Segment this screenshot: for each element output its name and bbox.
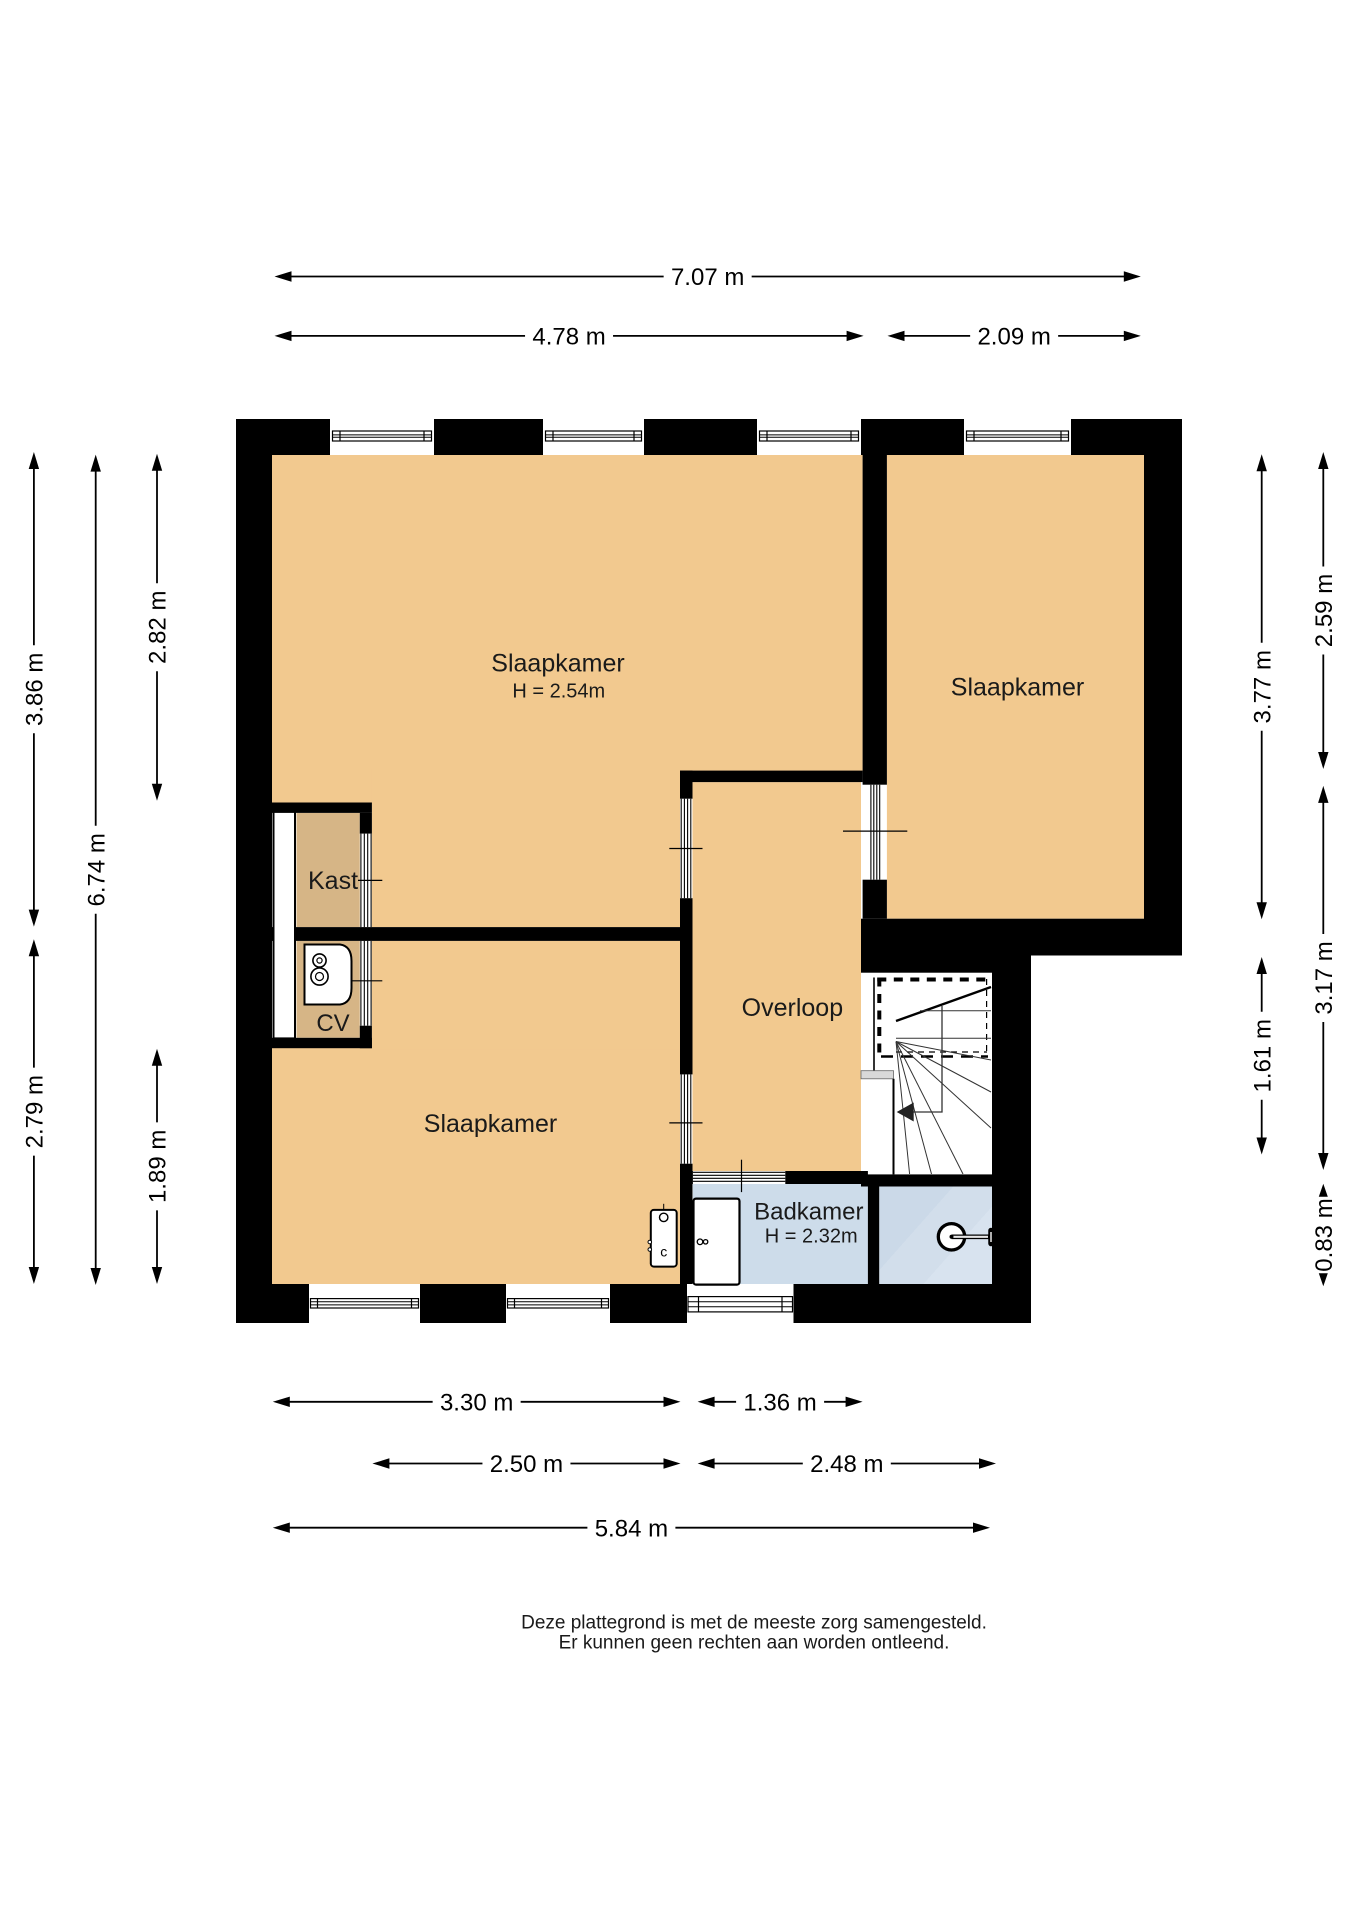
svg-text:5.84 m: 5.84 m	[595, 1515, 668, 1542]
svg-text:Overloop: Overloop	[742, 994, 843, 1022]
svg-text:0.83 m: 0.83 m	[1311, 1198, 1338, 1271]
svg-text:4.78 m: 4.78 m	[532, 324, 605, 351]
svg-text:H = 2.32m: H = 2.32m	[765, 1225, 858, 1247]
svg-text:H = 2.54m: H = 2.54m	[512, 681, 605, 703]
svg-text:Er kunnen geen rechten aan wor: Er kunnen geen rechten aan worden ontlee…	[559, 1633, 950, 1654]
svg-text:CV: CV	[316, 1010, 349, 1037]
svg-text:6.74 m: 6.74 m	[83, 833, 110, 906]
svg-text:1.61 m: 1.61 m	[1249, 1019, 1276, 1092]
svg-text:3.86 m: 3.86 m	[22, 653, 49, 726]
svg-text:Kast: Kast	[308, 867, 358, 895]
svg-text:Slaapkamer: Slaapkamer	[491, 650, 624, 678]
svg-text:Badkamer: Badkamer	[754, 1198, 863, 1225]
svg-text:2.79 m: 2.79 m	[22, 1075, 49, 1148]
svg-text:1.36 m: 1.36 m	[743, 1389, 816, 1416]
svg-text:2.09 m: 2.09 m	[977, 324, 1050, 351]
svg-text:2.82 m: 2.82 m	[145, 591, 172, 664]
svg-text:Slaapkamer: Slaapkamer	[951, 674, 1084, 702]
svg-text:3.30 m: 3.30 m	[440, 1389, 513, 1416]
svg-text:2.50 m: 2.50 m	[490, 1451, 563, 1478]
svg-text:2.59 m: 2.59 m	[1311, 574, 1338, 647]
svg-text:7.07 m: 7.07 m	[671, 264, 744, 291]
svg-text:2.48 m: 2.48 m	[810, 1451, 883, 1478]
svg-text:Deze plattegrond is met de mee: Deze plattegrond is met de meeste zorg s…	[521, 1613, 987, 1634]
svg-text:3.17 m: 3.17 m	[1311, 941, 1338, 1014]
svg-text:3.77 m: 3.77 m	[1249, 650, 1276, 723]
svg-text:1.89 m: 1.89 m	[145, 1130, 172, 1203]
svg-text:Slaapkamer: Slaapkamer	[424, 1110, 557, 1138]
svg-text:c: c	[660, 1244, 667, 1260]
